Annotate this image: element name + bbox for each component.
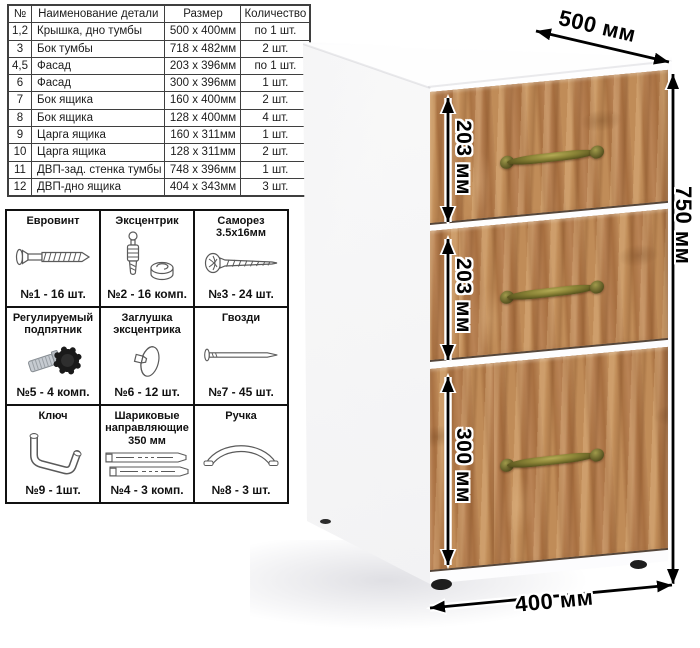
hardware-title: Гвозди bbox=[222, 312, 260, 324]
hardware-title: Регулируемый подпятник bbox=[9, 312, 97, 337]
hardware-cell-kluch: Ключ №9 - 1шт. bbox=[6, 405, 100, 503]
part-name: Крышка, дно тумбы bbox=[32, 23, 165, 40]
part-num: 6 bbox=[8, 75, 32, 92]
handle-icon bbox=[202, 422, 280, 483]
drawer-handle bbox=[500, 446, 604, 474]
self-tapping-screw-icon bbox=[204, 240, 278, 287]
drawer3-dim-label: 300 мм bbox=[451, 428, 475, 503]
hardware-count: №8 - 3 шт. bbox=[212, 483, 271, 497]
part-qty: 2 шт. bbox=[241, 40, 310, 57]
part-size: 203 х 396мм bbox=[165, 57, 241, 74]
part-num: 3 bbox=[8, 40, 32, 57]
part-qty: 4 шт. bbox=[241, 109, 310, 126]
part-qty: 3 шт. bbox=[241, 178, 310, 196]
handle-rosette-right bbox=[590, 279, 604, 294]
col-header-qty: Количество bbox=[241, 5, 310, 23]
part-size: 300 х 396мм bbox=[165, 75, 241, 92]
part-name: ДВП-зад. стенка тумбы bbox=[32, 161, 165, 178]
hardware-title: Ключ bbox=[38, 410, 67, 422]
handle-bar bbox=[507, 450, 597, 469]
width-dim-label: 400 мм bbox=[514, 584, 595, 617]
cabinet-top-left-edge bbox=[303, 43, 431, 89]
part-name: Бок тумбы bbox=[32, 40, 165, 57]
table-row: 7Бок ящика160 х 400мм2 шт. bbox=[8, 92, 310, 109]
part-size: 128 х 311мм bbox=[165, 144, 241, 161]
part-qty: 1 шт. bbox=[241, 127, 310, 144]
part-qty: 2 шт. bbox=[241, 144, 310, 161]
hardware-count: №1 - 16 шт. bbox=[20, 287, 86, 301]
hardware-cell-napravlyayushchie: Шариковые направляющие 350 мм №4 - 3 ком… bbox=[100, 405, 194, 503]
table-row: 6Фасад300 х 396мм1 шт. bbox=[8, 75, 310, 92]
hardware-count: №5 - 4 комп. bbox=[16, 385, 89, 399]
table-row: 10Царга ящика128 х 311мм2 шт. bbox=[8, 144, 310, 161]
parts-table-header-row: № Наименование детали Размер Количество bbox=[8, 5, 310, 23]
part-num: 8 bbox=[8, 109, 32, 126]
part-num: 10 bbox=[8, 144, 32, 161]
hardware-cell-zaglushka: Заглушка эксцентрика №6 - 12 шт. bbox=[100, 307, 194, 405]
hardware-count: №6 - 12 шт. bbox=[114, 385, 180, 399]
drawer-handle bbox=[500, 278, 604, 306]
part-size: 160 х 311мм bbox=[165, 127, 241, 144]
hardware-count: №4 - 3 комп. bbox=[110, 483, 183, 497]
col-header-num: № bbox=[8, 5, 32, 23]
cabinet-foot-front-left bbox=[431, 578, 453, 590]
assembly-sheet: № Наименование детали Размер Количество … bbox=[0, 0, 700, 648]
hardware-cell-eurovint: Евровинт №1 - 16 шт. bbox=[6, 210, 100, 307]
hardware-title: Ручка bbox=[225, 410, 256, 422]
handle-rosette-right bbox=[590, 447, 604, 462]
part-name: ДВП-дно ящика bbox=[32, 178, 165, 196]
part-name: Бок ящика bbox=[32, 92, 165, 109]
table-row: 11ДВП-зад. стенка тумбы748 х 396мм1 шт. bbox=[8, 161, 310, 178]
part-size: 128 х 400мм bbox=[165, 109, 241, 126]
hardware-grid: Евровинт №1 - 16 шт. Эксцентрик bbox=[5, 209, 289, 504]
table-row: 1,2Крышка, дно тумбы500 х 400ммпо 1 шт. bbox=[8, 23, 310, 40]
part-num: 7 bbox=[8, 92, 32, 109]
hardware-title: Заглушка эксцентрика bbox=[103, 312, 191, 337]
height-dim-label: 750 мм bbox=[670, 186, 696, 264]
table-row: 12ДВП-дно ящика404 х 343мм3 шт. bbox=[8, 178, 310, 196]
part-name: Бок ящика bbox=[32, 109, 165, 126]
part-num: 1,2 bbox=[8, 23, 32, 40]
part-name: Фасад bbox=[32, 57, 165, 74]
part-qty: по 1 шт. bbox=[241, 23, 310, 40]
drawer-handle bbox=[500, 143, 604, 171]
table-row: 8Бок ящика128 х 400мм4 шт. bbox=[8, 109, 310, 126]
handle-rosette-right bbox=[590, 144, 604, 159]
hardware-count: №2 - 16 комп. bbox=[107, 287, 187, 301]
col-header-size: Размер bbox=[165, 5, 241, 23]
part-size: 718 х 482мм bbox=[165, 40, 241, 57]
part-qty: по 1 шт. bbox=[241, 57, 310, 74]
hardware-cell-podpyatnik: Регулируемый подпятник №5 - 4 ко bbox=[6, 307, 100, 405]
cabinet-foot-front-right bbox=[630, 560, 647, 569]
table-row: 3Бок тумбы718 х 482мм2 шт. bbox=[8, 40, 310, 57]
hardware-title: Саморез 3.5х16мм bbox=[197, 215, 285, 240]
part-qty: 1 шт. bbox=[241, 75, 310, 92]
hex-key-icon bbox=[20, 422, 86, 483]
cam-cover-icon bbox=[126, 337, 168, 385]
col-header-name: Наименование детали bbox=[32, 5, 165, 23]
drawer2-dim-label: 203 мм bbox=[451, 258, 475, 333]
part-name: Царга ящика bbox=[32, 127, 165, 144]
cabinet-foot-back-left bbox=[320, 519, 331, 524]
hardware-count: №9 - 1шт. bbox=[25, 483, 81, 497]
depth-dim-label: 500 мм bbox=[556, 5, 638, 48]
hardware-count: №7 - 45 шт. bbox=[208, 385, 274, 399]
hardware-title: Шариковые направляющие 350 мм bbox=[103, 410, 191, 447]
cam-bolt-icon bbox=[115, 227, 179, 287]
hardware-cell-gvozdi: Гвозди №7 - 45 шт. bbox=[194, 307, 288, 405]
drawer1-dim-label: 203 мм bbox=[451, 120, 475, 195]
part-name: Фасад bbox=[32, 75, 165, 92]
adjustable-foot-icon bbox=[24, 337, 82, 385]
handle-bar bbox=[507, 282, 597, 301]
hardware-cell-ruchka: Ручка №8 - 3 шт. bbox=[194, 405, 288, 503]
hardware-cell-samorez: Саморез 3.5х16мм №3 - 24 шт. bbox=[194, 210, 288, 307]
part-size: 160 х 400мм bbox=[165, 92, 241, 109]
hardware-title: Евровинт bbox=[26, 215, 79, 227]
part-qty: 1 шт. bbox=[241, 161, 310, 178]
part-num: 12 bbox=[8, 178, 32, 196]
part-size: 404 х 343мм bbox=[165, 178, 241, 196]
handle-bar bbox=[507, 147, 597, 166]
table-row: 9Царга ящика160 х 311мм1 шт. bbox=[8, 127, 310, 144]
part-size: 748 х 396мм bbox=[165, 161, 241, 178]
part-num: 9 bbox=[8, 127, 32, 144]
part-num: 11 bbox=[8, 161, 32, 178]
parts-table: № Наименование детали Размер Количество … bbox=[7, 4, 311, 197]
table-row: 4,5Фасад203 х 396ммпо 1 шт. bbox=[8, 57, 310, 74]
hardware-count: №3 - 24 шт. bbox=[208, 287, 274, 301]
ball-guides-icon bbox=[104, 447, 190, 483]
part-size: 500 х 400мм bbox=[165, 23, 241, 40]
hardware-title: Эксцентрик bbox=[115, 215, 178, 227]
nail-icon bbox=[202, 324, 280, 385]
part-name: Царга ящика bbox=[32, 144, 165, 161]
euro-screw-icon bbox=[15, 227, 91, 287]
hardware-cell-excentric: Эксцентрик №2 - bbox=[100, 210, 194, 307]
part-num: 4,5 bbox=[8, 57, 32, 74]
part-qty: 2 шт. bbox=[241, 92, 310, 109]
